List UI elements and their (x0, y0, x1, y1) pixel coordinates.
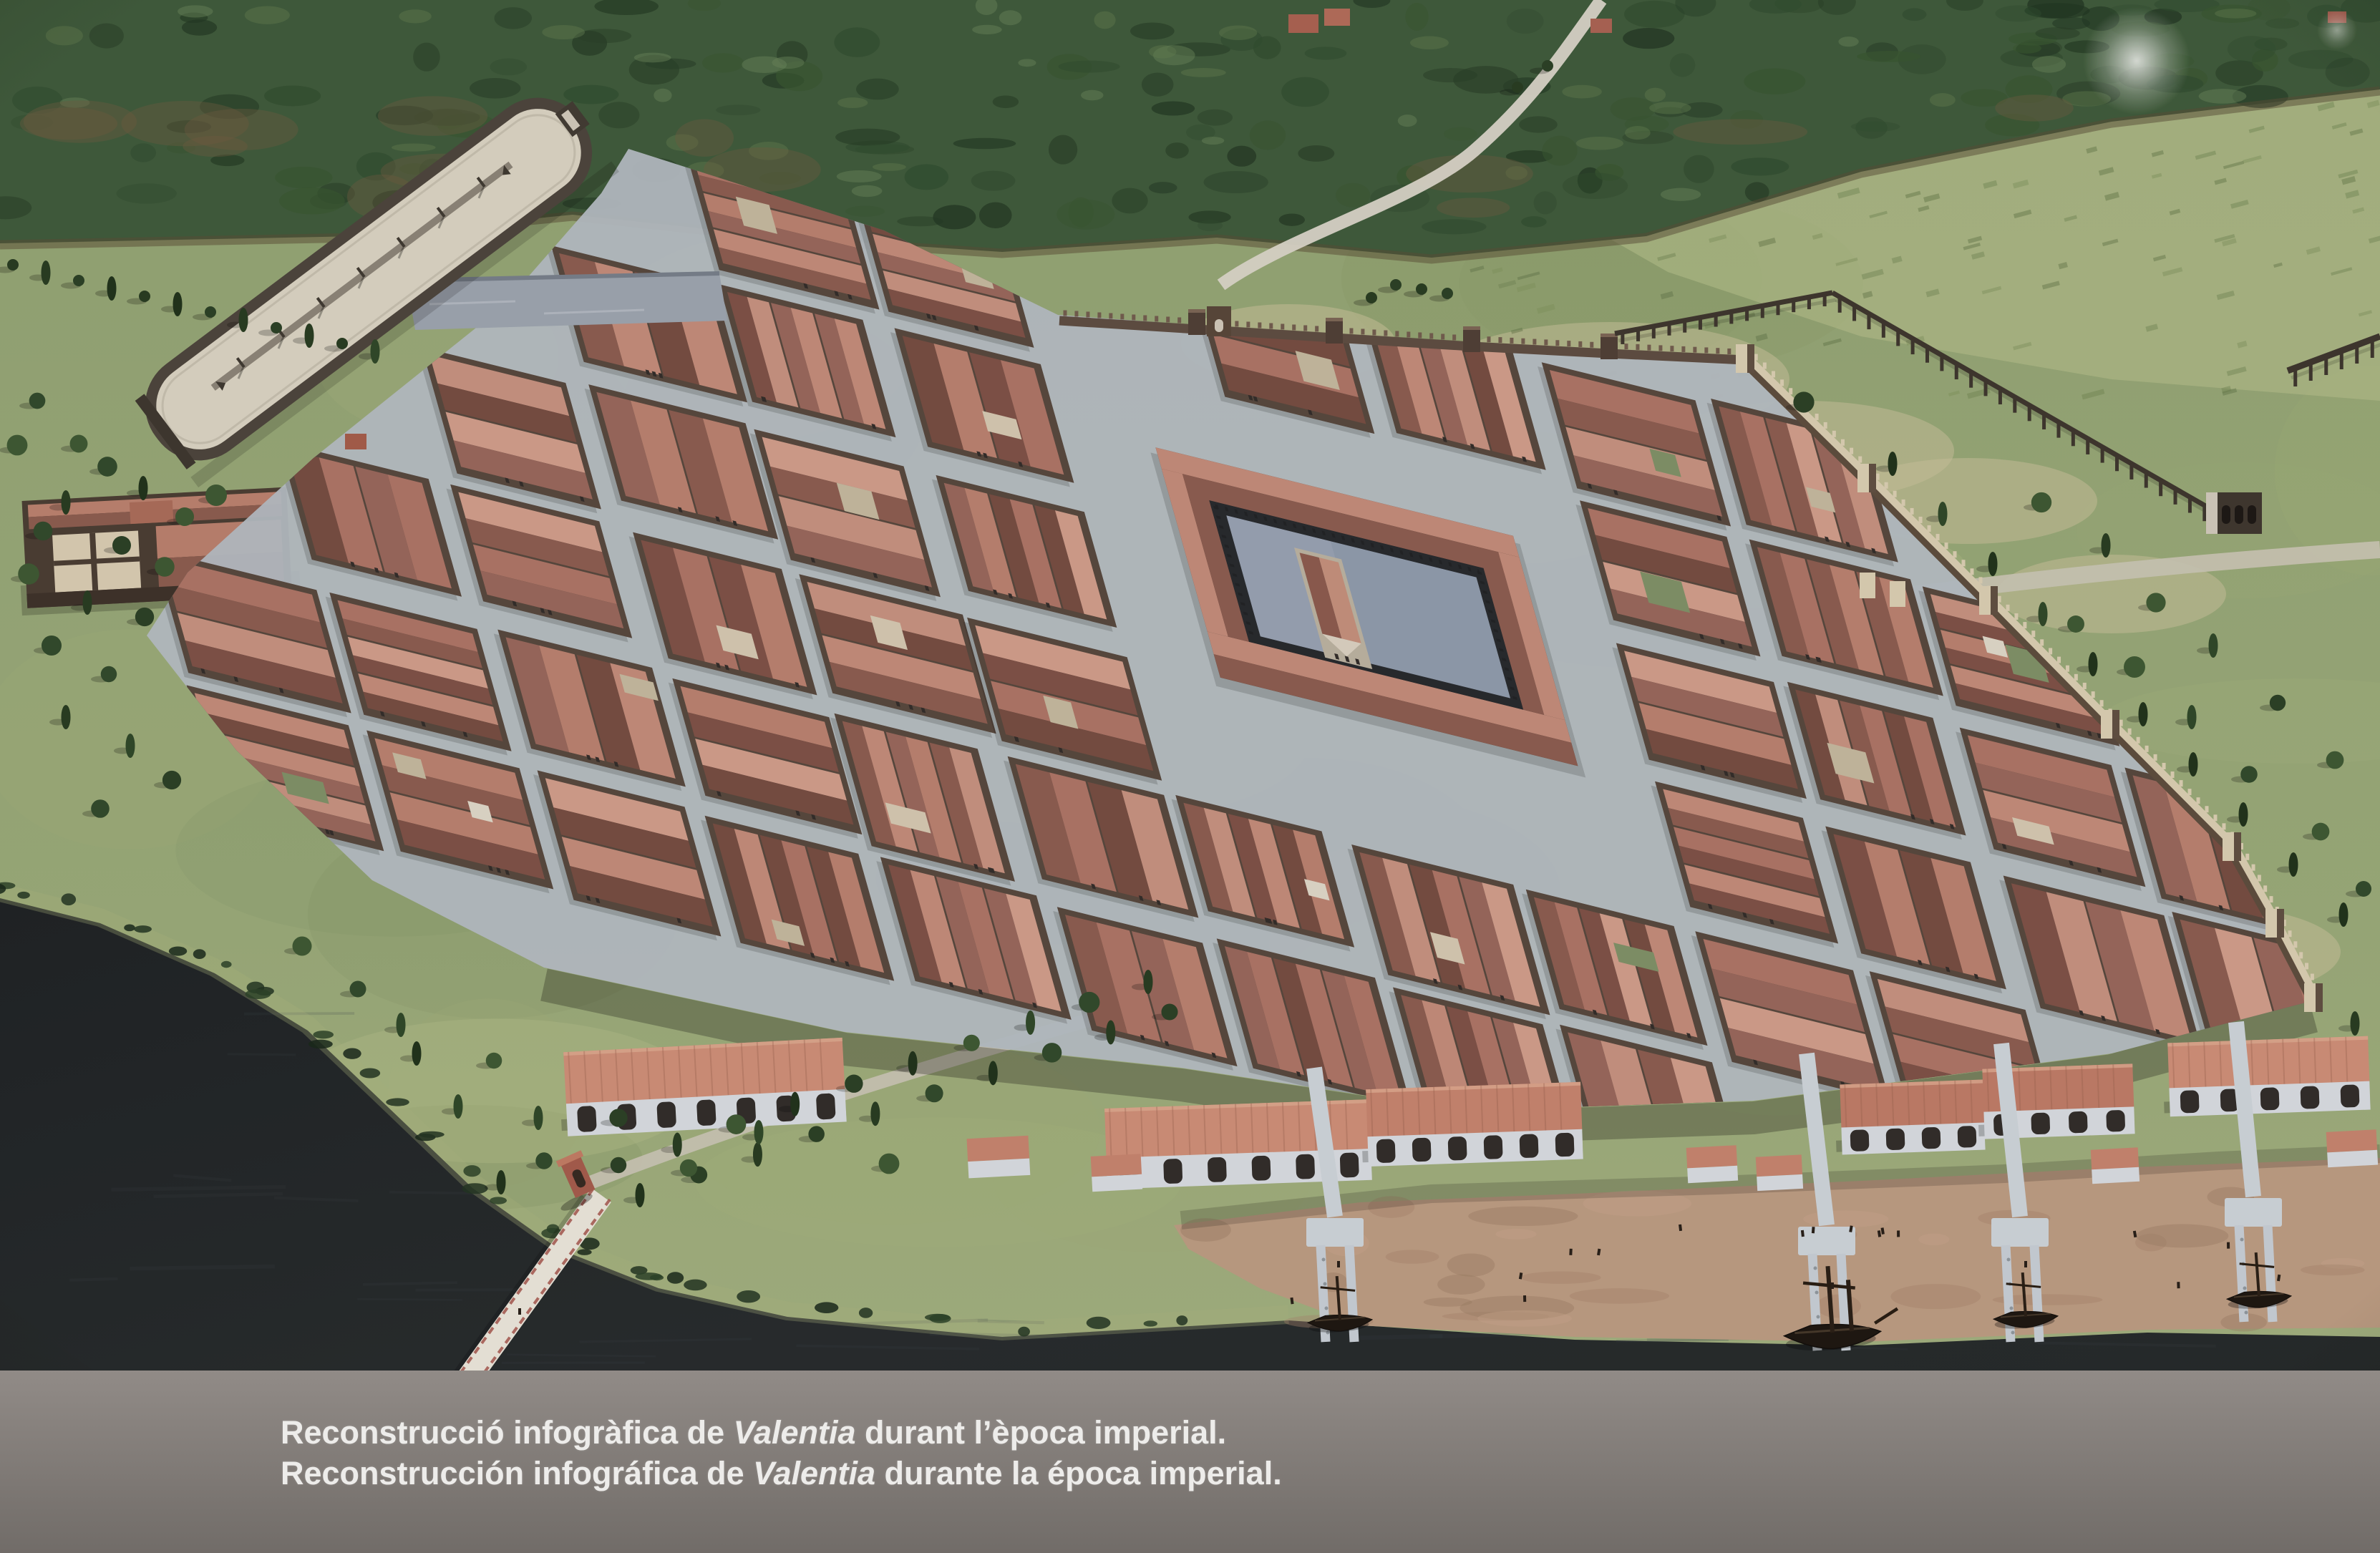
caption-es-valentia: Valentia (753, 1455, 875, 1491)
caption-es-suffix: durante la época imperial. (875, 1455, 1282, 1491)
caption-es-prefix: Reconstrucción infográfica de (281, 1455, 753, 1491)
caption-bar: Reconstrucció infogràfica de Valentia du… (0, 1371, 2380, 1553)
caption-ca-suffix: durant l’època imperial. (856, 1414, 1227, 1451)
caption-line-catalan: Reconstrucció infogràfica de Valentia du… (0, 1371, 2380, 1453)
museum-panel-photo: Reconstrucció infogràfica de Valentia du… (0, 0, 2380, 1553)
caption-ca-valentia: Valentia (734, 1414, 856, 1451)
valentia-reconstruction-illustration (0, 0, 2380, 1553)
caption-ca-prefix: Reconstrucció infogràfica de (281, 1414, 734, 1451)
caption-line-spanish: Reconstrucción infográfica de Valentia d… (0, 1453, 2380, 1494)
photo-glare-vignette (0, 0, 2380, 1553)
